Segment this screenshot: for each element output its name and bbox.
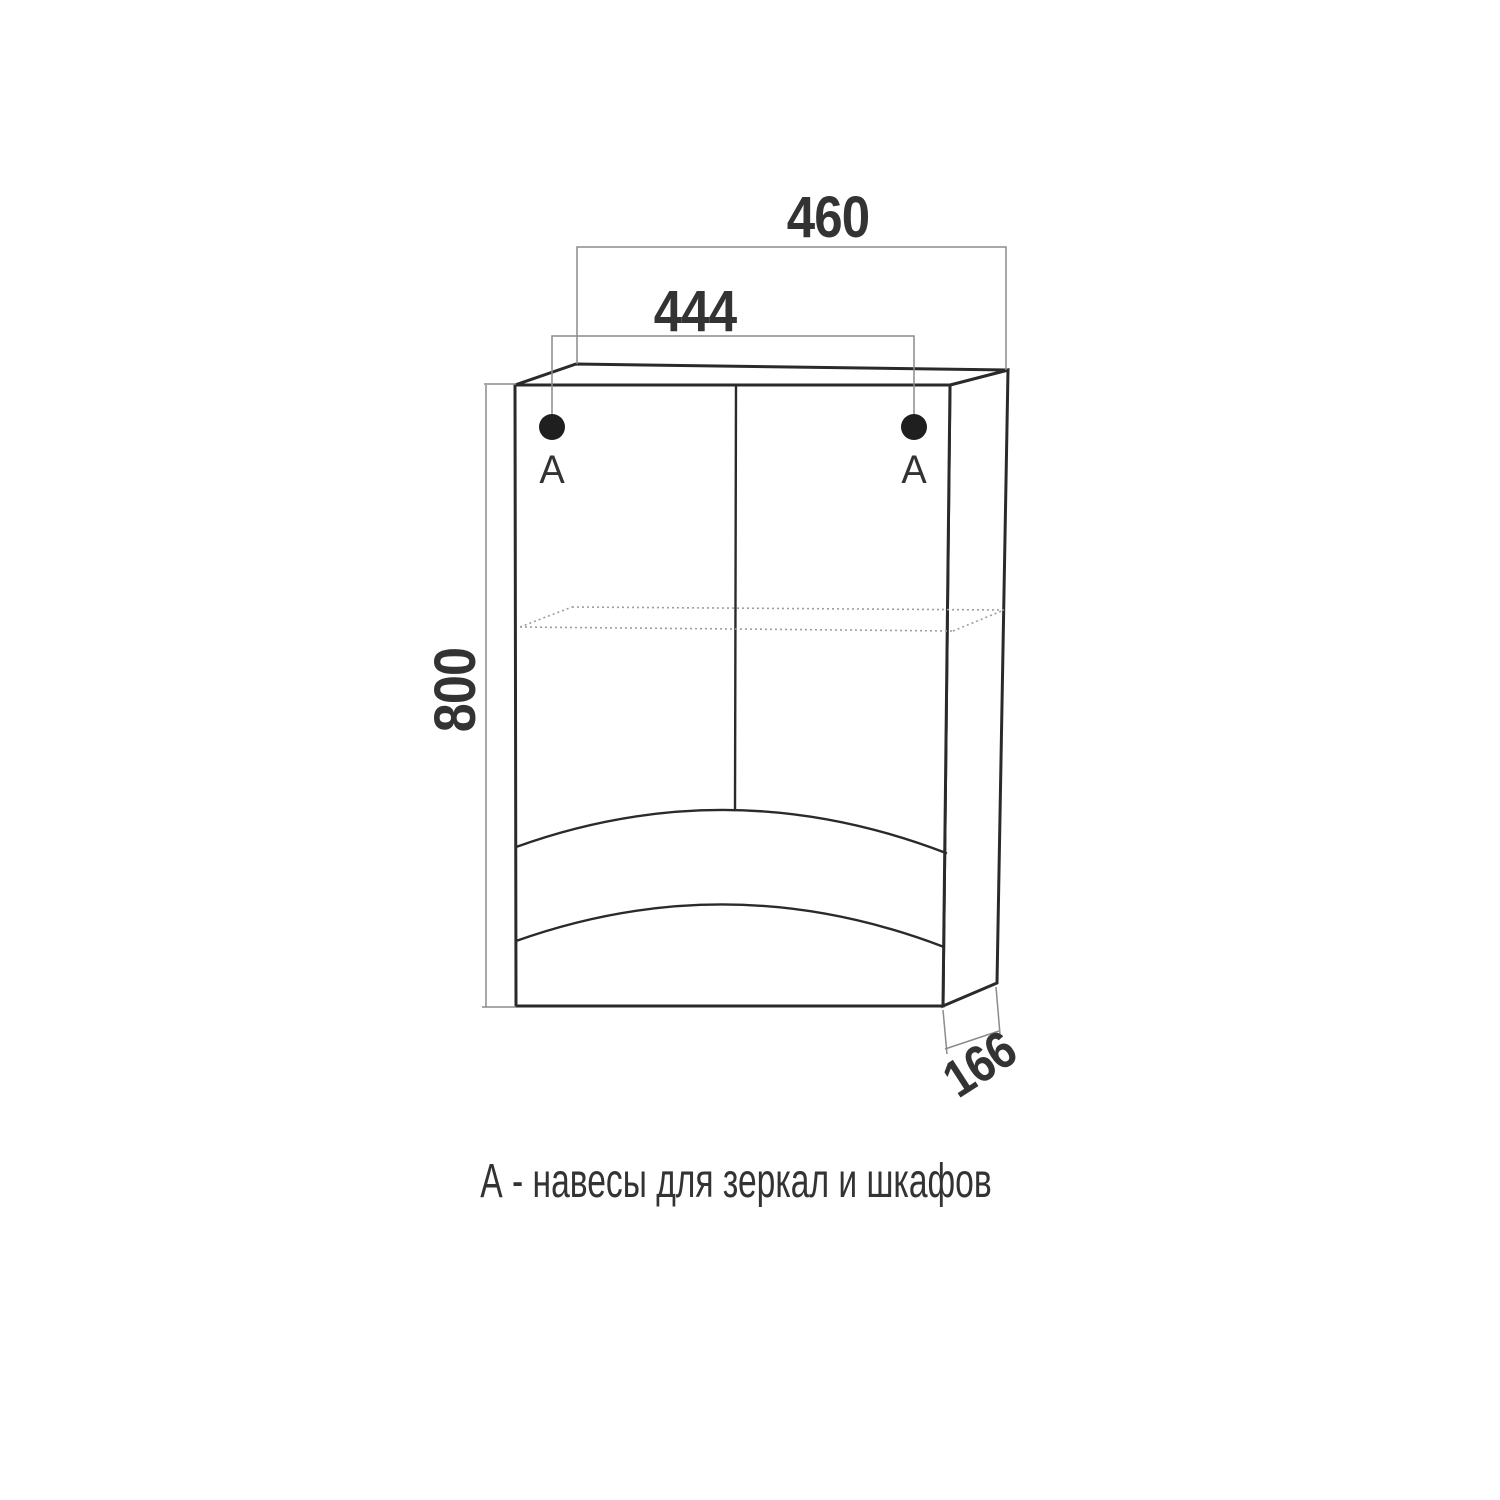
door-divider-line <box>735 385 736 810</box>
cabinet-diagram-canvas: 460 444 800 166 А А А - наве <box>0 0 1500 1500</box>
dimension-height: 800 <box>422 384 516 1007</box>
dimension-166-extension-left <box>943 1010 947 1054</box>
dimension-800-value: 800 <box>422 648 487 732</box>
dimension-444-value: 444 <box>654 279 738 344</box>
cabinet-side-panel <box>943 370 1008 1006</box>
cabinet-top-face <box>515 364 1008 385</box>
hanger-marker-label-left: А <box>539 448 564 492</box>
dimension-460-value: 460 <box>787 185 870 250</box>
cabinet-drawing <box>515 364 1008 1006</box>
hanger-dot-right <box>901 414 927 440</box>
dimension-460-bracket <box>577 247 1006 370</box>
hanger-marker-label-right: А <box>901 448 926 492</box>
cabinet-front-face <box>515 385 950 1006</box>
furniture-dimension-diagram: 460 444 800 166 А А А - наве <box>0 0 1500 1500</box>
diagram-caption: А - навесы для зеркал и шкафов <box>480 1153 991 1207</box>
dimension-overall-width: 460 <box>577 185 1006 370</box>
dimension-166-value: 166 <box>933 1021 1026 1109</box>
hanger-dot-left <box>539 414 565 440</box>
